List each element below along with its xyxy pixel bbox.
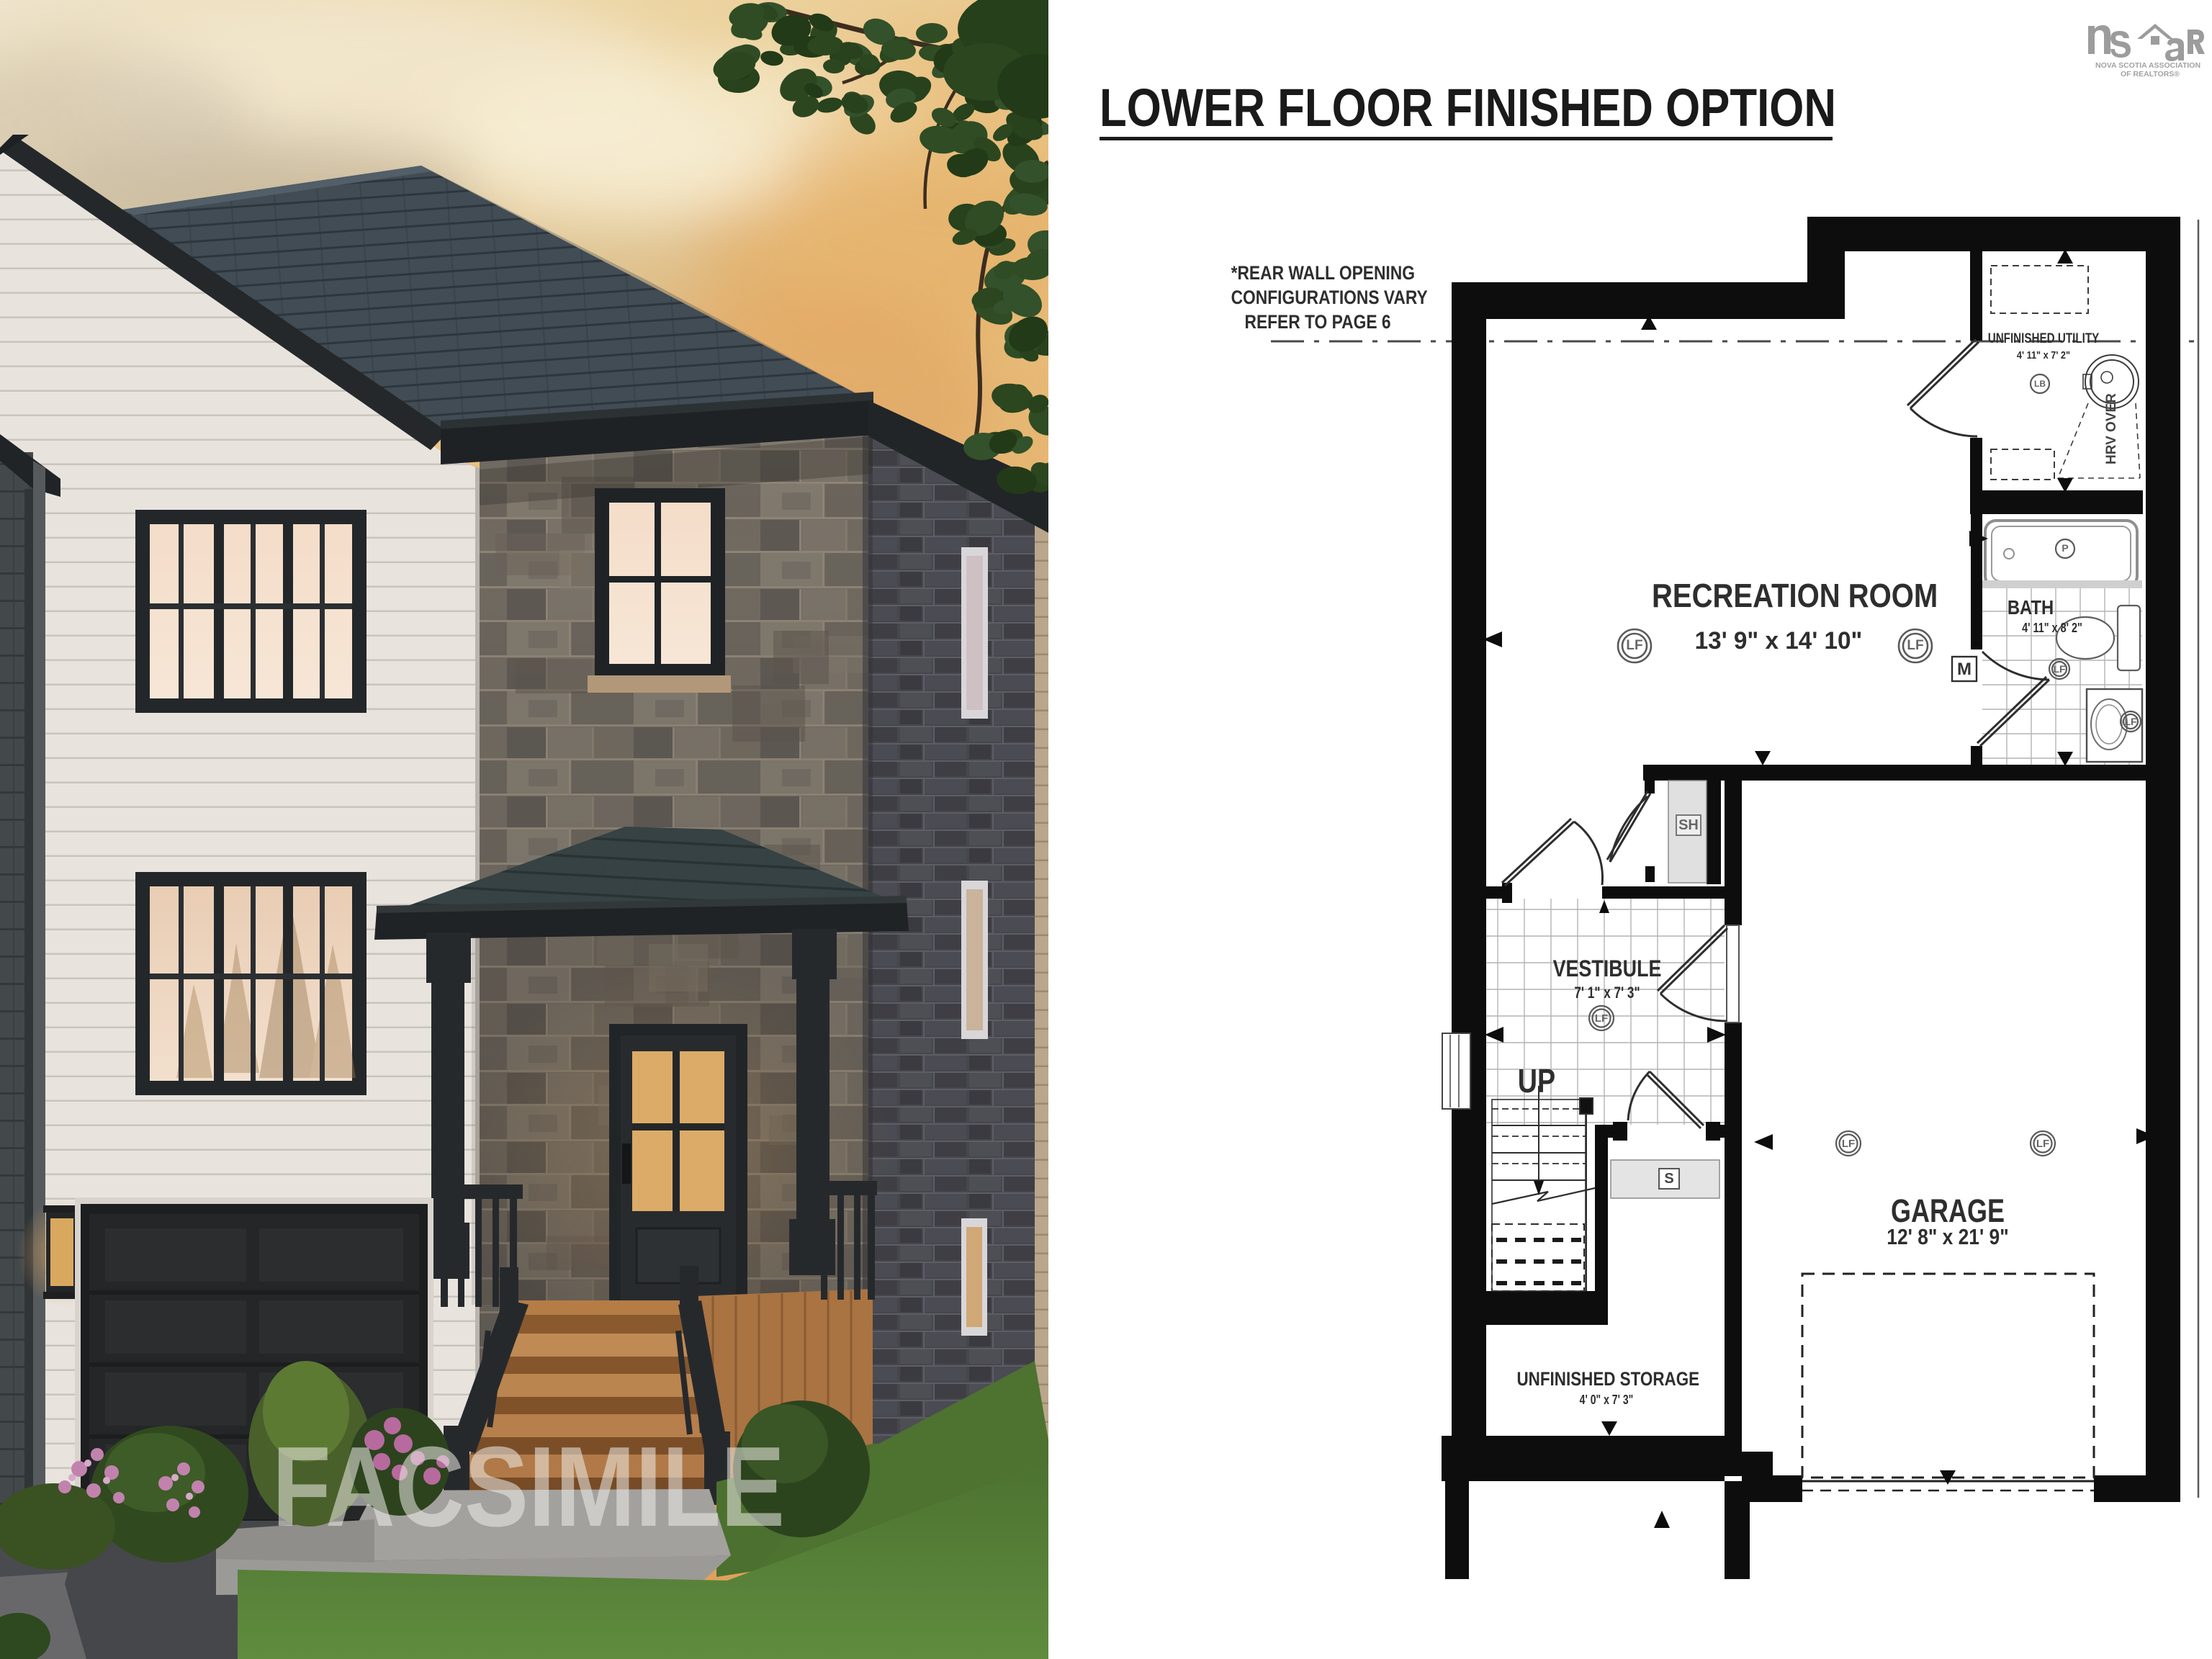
svg-text:NOVA SCOTIA ASSOCIATION: NOVA SCOTIA ASSOCIATION bbox=[2095, 61, 2200, 70]
svg-text:OF REALTORS®: OF REALTORS® bbox=[2121, 70, 2180, 78]
svg-text:FACSIMILE: FACSIMILE bbox=[272, 1423, 785, 1550]
